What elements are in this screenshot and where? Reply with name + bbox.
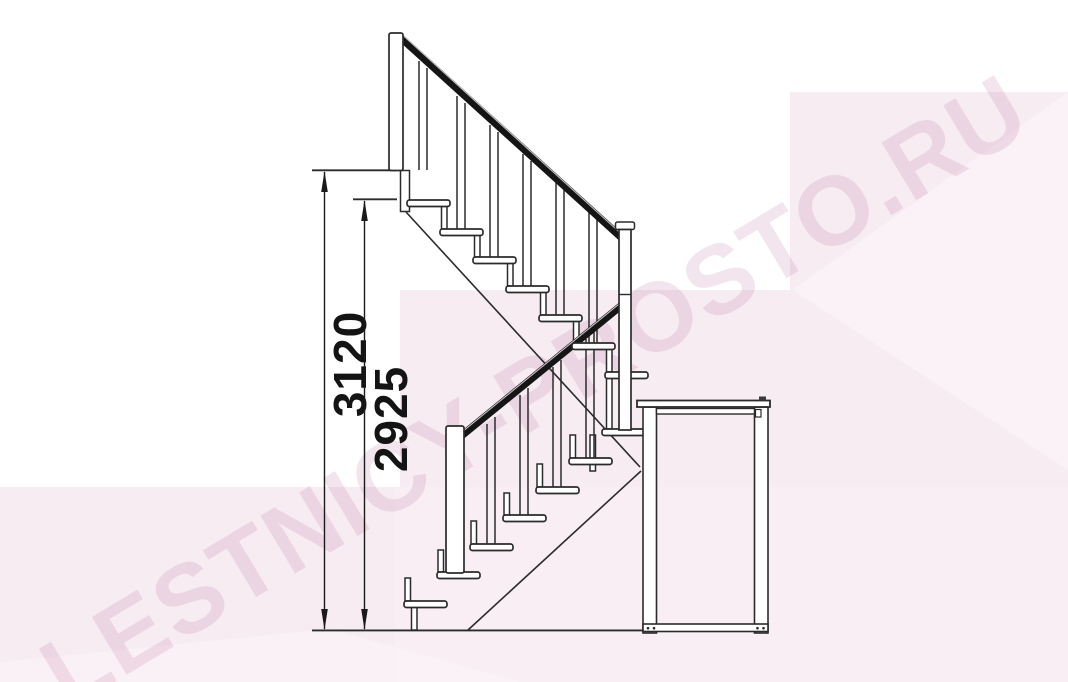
bottom-newel-post (446, 426, 464, 573)
support-column (607, 349, 613, 372)
platform-corner-bracket (759, 397, 766, 401)
support-column (504, 493, 510, 515)
support-column (405, 578, 411, 601)
staircase-technical-drawing: LESTNICY-PROSTO.RU 3120 2925 (0, 0, 1068, 682)
support-column (607, 378, 613, 429)
tread (404, 601, 447, 608)
landing-newel-post (619, 230, 631, 431)
support-column (537, 464, 543, 487)
support-column (570, 435, 576, 458)
tread (440, 229, 483, 236)
tread (470, 544, 513, 551)
tread (539, 315, 582, 322)
platform-bottom-rail (643, 624, 768, 632)
platform-right-leg (755, 407, 769, 633)
tread (407, 200, 450, 207)
support-column (541, 292, 547, 315)
tread (473, 257, 516, 264)
support-column (412, 607, 418, 630)
platform-deck (637, 401, 770, 408)
support-column (471, 521, 477, 544)
support-column (438, 550, 444, 572)
tread (506, 286, 549, 293)
drawing-canvas: LESTNICY-PROSTO.RU 3120 2925 (0, 0, 1068, 682)
support-column (475, 235, 481, 257)
support-column (508, 263, 514, 286)
platform-corner-fitting (756, 410, 762, 418)
platform-left-leg (643, 407, 657, 633)
platform-top-rail (657, 409, 755, 415)
tread (536, 487, 579, 494)
landing-newel-cap (616, 222, 635, 230)
tread (569, 458, 612, 465)
tread (503, 515, 546, 522)
tread (572, 343, 615, 350)
support-column (442, 206, 448, 229)
dimension-label-2925: 2925 (365, 366, 417, 472)
top-newel-post (389, 33, 403, 171)
